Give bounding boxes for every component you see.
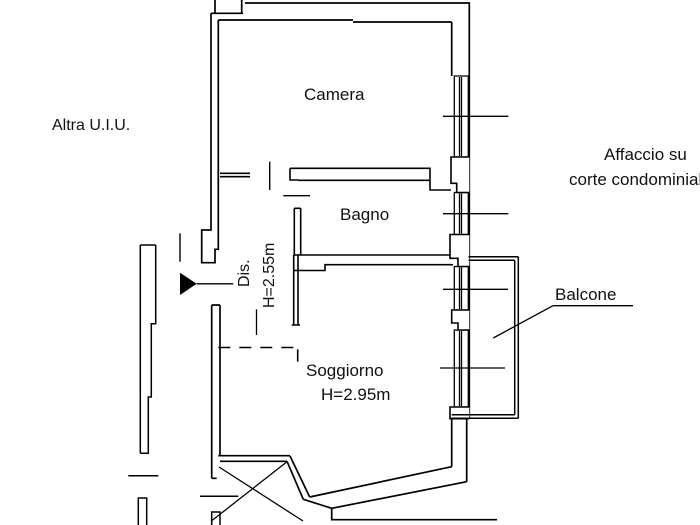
wall-slanted-south	[287, 456, 497, 520]
adjacent-wall-stub-1	[138, 498, 146, 525]
balcone-label: Balcone	[555, 285, 616, 305]
wall-top-inner	[218, 20, 451, 76]
interior-walls	[220, 168, 453, 361]
adjacent-unit-label: Altra U.I.U.	[52, 117, 130, 135]
wall-bagno-soggiorno	[294, 255, 453, 271]
dis-height-label: H=2.55m	[261, 243, 278, 308]
pier-1	[451, 157, 469, 193]
room-label-camera: Camera	[304, 85, 364, 105]
soggiorno-height-label: H=2.95m	[321, 385, 390, 405]
window-soggiorno-upper	[454, 267, 468, 311]
balcony	[452, 257, 633, 419]
courtyard-note-line2: corte condominiale	[569, 170, 700, 190]
balcony-right	[515, 257, 519, 419]
room-label-dis: Dis.	[236, 259, 253, 287]
wall-bottom-dis	[218, 456, 290, 462]
room-label-bagno: Bagno	[340, 205, 389, 225]
balcony-top	[469, 257, 519, 261]
room-label-soggiorno: Soggiorno	[306, 361, 384, 381]
courtyard-note-line1: Affaccio su	[604, 145, 687, 165]
adjacent-wall-stub-2	[212, 512, 220, 525]
shaft-cross-lines	[211, 462, 303, 522]
pier-2	[450, 235, 469, 267]
adjacent-wall-strip	[140, 245, 155, 453]
wall-left-upper	[202, 13, 219, 262]
floorplan-drawing: Dis. H=2.55m	[0, 0, 700, 525]
entrance-arrow-icon	[180, 273, 197, 295]
wall-right-lower	[452, 419, 467, 482]
wall-dis-soggiorno	[292, 255, 300, 325]
pier-3	[452, 310, 470, 330]
floorplan-page: Dis. H=2.55m Altra U.I.U. Camera Bagno S…	[0, 0, 700, 525]
wall-camera-bagno	[290, 168, 451, 190]
wall-camera-dis	[220, 173, 250, 176]
pier-4	[450, 407, 469, 419]
shaft-cross	[211, 462, 303, 522]
wall-left-lower	[212, 305, 220, 478]
wall-bagno-left	[294, 208, 300, 255]
